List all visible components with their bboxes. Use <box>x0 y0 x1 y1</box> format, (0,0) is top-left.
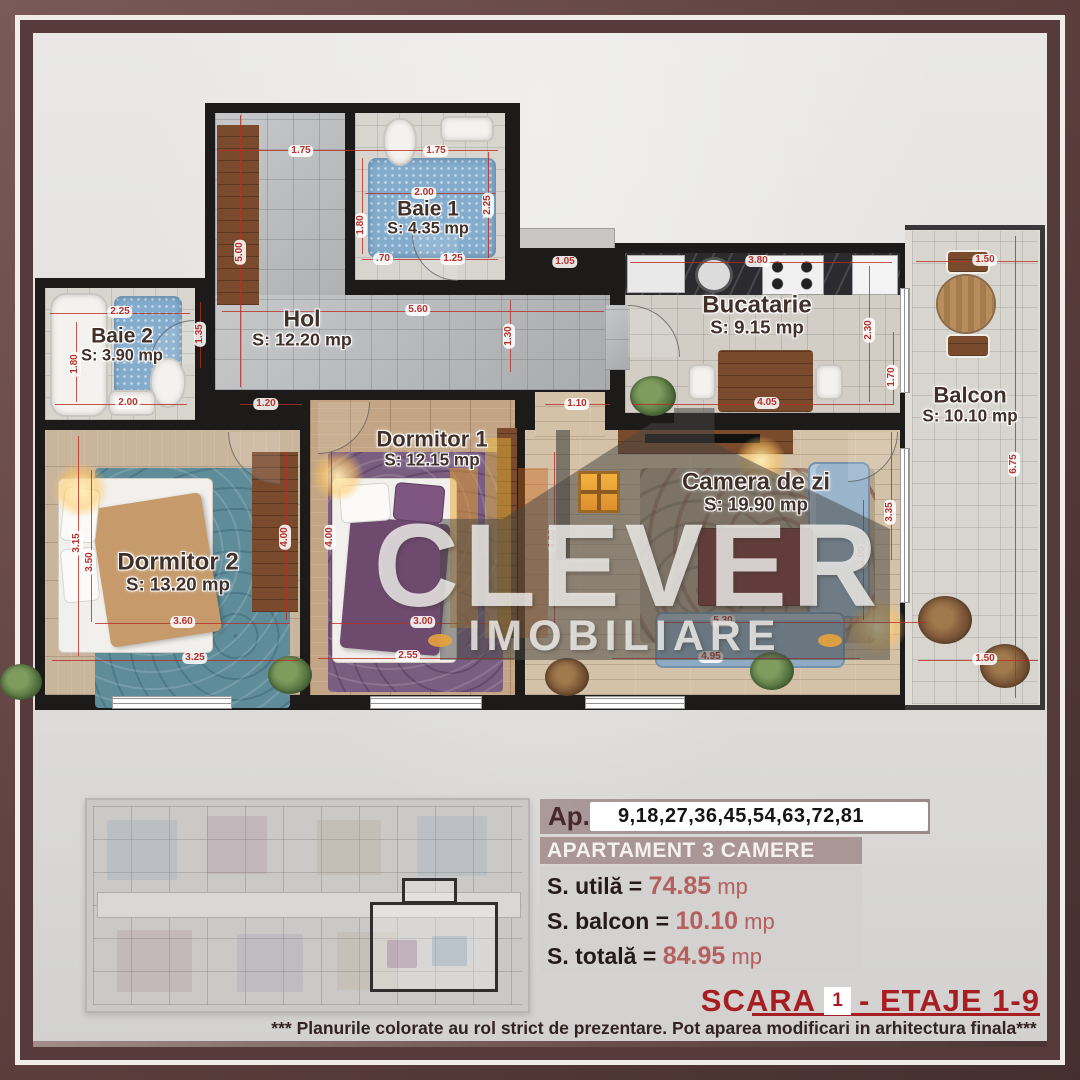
room-name: Hol <box>252 307 352 331</box>
scara-number-box: 1 <box>824 987 851 1015</box>
room-label-hol: HolS: 12.20 mp <box>252 307 352 350</box>
room-area: S: 19.90 mp <box>682 495 830 515</box>
apartment-numbers: 9,18,27,36,45,54,63,72,81 <box>618 805 864 828</box>
room-name: Baie 2 <box>81 325 163 347</box>
mini-plan-unit <box>117 930 192 992</box>
room-area: S: 3.90 mp <box>81 347 163 364</box>
room-label-baie1: Baie 1S: 4.35 mp <box>387 198 469 237</box>
room-name: Balcon <box>922 383 1017 406</box>
mini-plan-highlight-room <box>387 940 417 968</box>
apartment-number-label: Ap. <box>548 801 590 832</box>
mini-floor-plan <box>85 798 530 1013</box>
room-area: S: 13.20 mp <box>117 575 238 595</box>
apartment-type-label: APARTAMENT 3 CAMERE <box>547 839 815 863</box>
scara-line: SCARA 1 - ETAJE 1-9 <box>701 983 1040 1019</box>
mini-plan-highlight-notch <box>402 878 457 904</box>
room-area: S: 9.15 mp <box>702 318 811 338</box>
room-name: Camera de zi <box>682 470 830 495</box>
mini-plan-unit <box>207 816 267 874</box>
mini-plan-unit <box>417 816 487 876</box>
room-name: Baie 1 <box>387 198 469 220</box>
room-name: Bucatarie <box>702 293 811 318</box>
room-area: S: 4.35 mp <box>387 220 469 237</box>
etaje-label: - ETAJE 1-9 <box>859 983 1040 1019</box>
mini-plan-unit <box>107 820 177 880</box>
room-name: Dormitor 2 <box>117 550 238 575</box>
room-area: S: 12.20 mp <box>252 331 352 350</box>
room-label-dormitor1: Dormitor 1S: 12.15 mp <box>376 427 487 468</box>
room-label-balcon: BalconS: 10.10 mp <box>922 383 1017 424</box>
flyer-page: 1.751.752.002.251.80.701.255.002.251.351… <box>0 0 1080 1080</box>
mini-plan-highlight-room <box>432 936 467 966</box>
mini-plan-unit <box>237 934 303 992</box>
room-area: S: 10.10 mp <box>922 407 1017 425</box>
scara-label: SCARA <box>701 983 816 1019</box>
room-label-bucatarie: BucatarieS: 9.15 mp <box>702 293 811 338</box>
disclaimer-text: *** Planurile colorate au rol strict de … <box>271 1018 1036 1039</box>
room-label-baie2: Baie 2S: 3.90 mp <box>81 325 163 364</box>
mini-plan-unit <box>317 820 381 875</box>
room-label-camera-de-zi: Camera de ziS: 19.90 mp <box>682 470 830 515</box>
room-name: Dormitor 1 <box>376 427 487 450</box>
room-label-dormitor2: Dormitor 2S: 13.20 mp <box>117 550 238 595</box>
area-rows-background <box>540 866 862 972</box>
room-area: S: 12.15 mp <box>376 451 487 469</box>
